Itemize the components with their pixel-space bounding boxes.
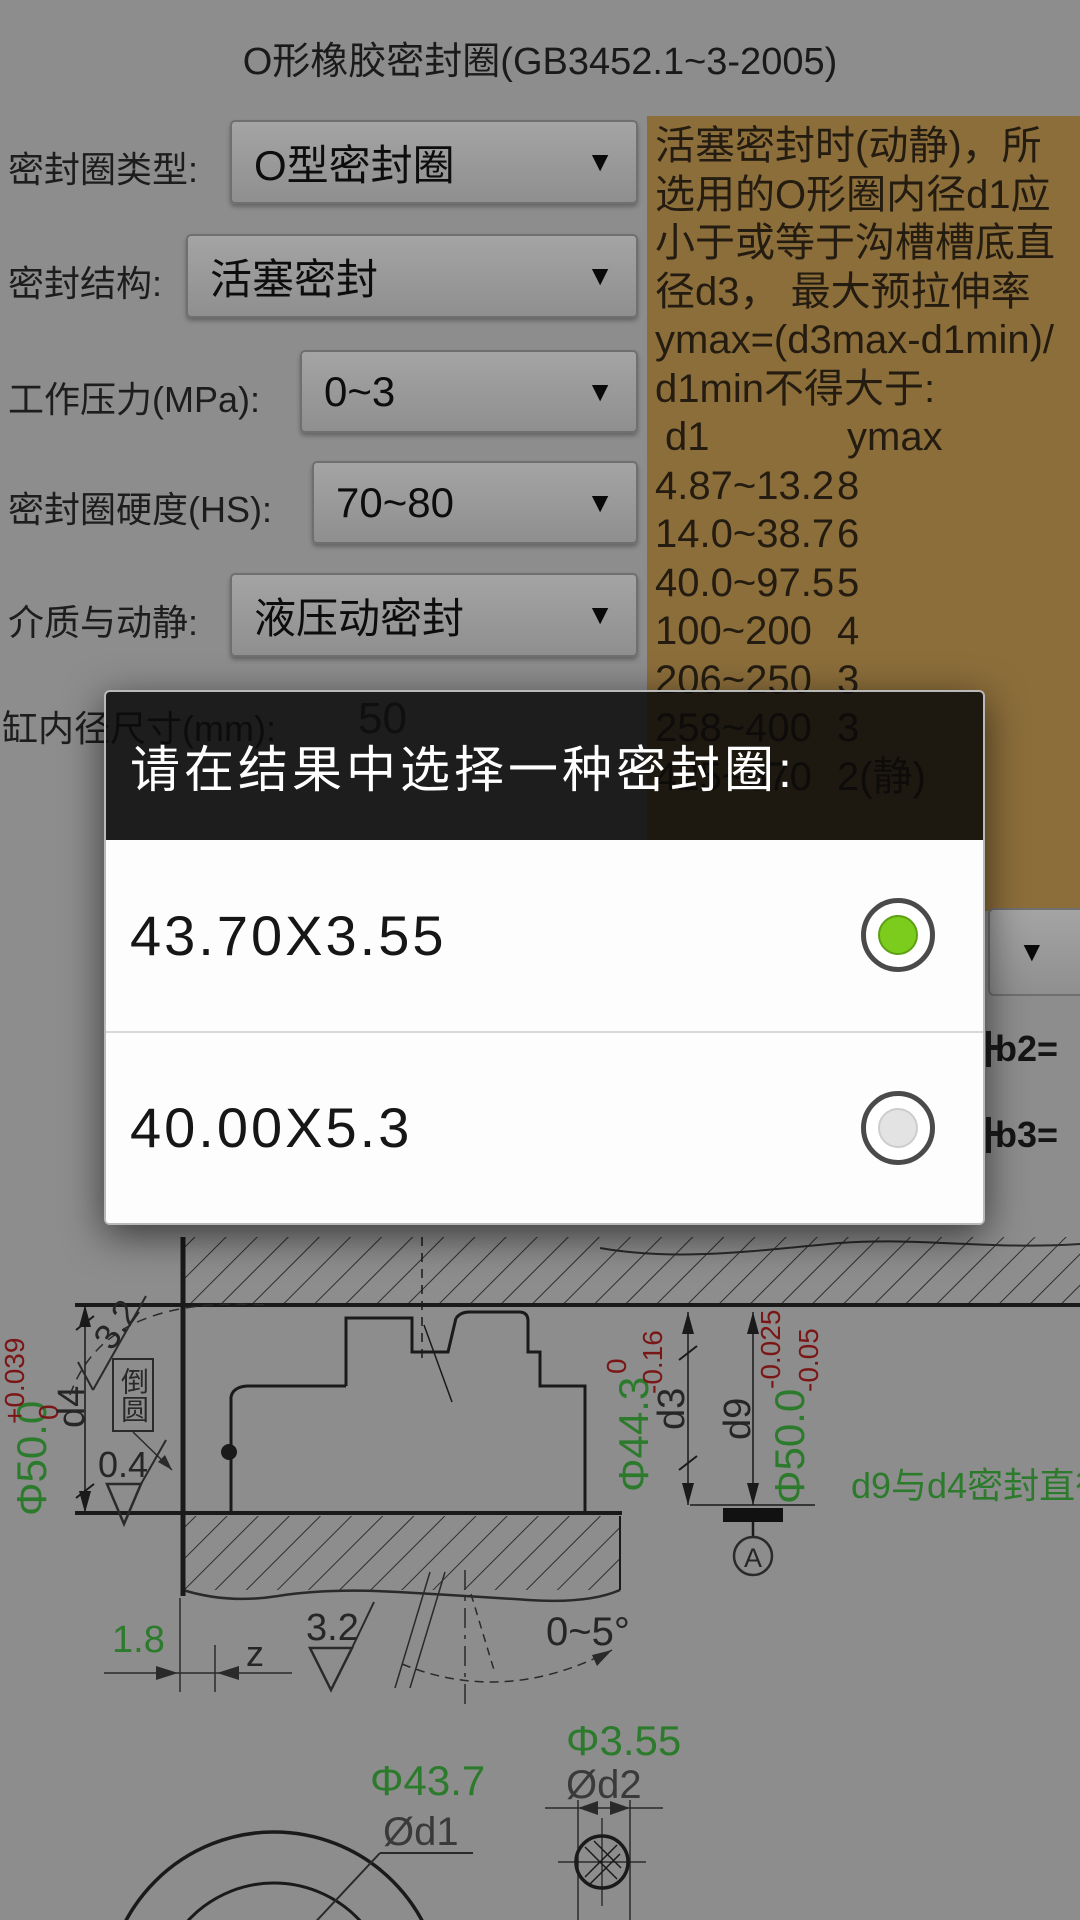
chevron-down-icon: ▼	[586, 599, 614, 631]
radio-dot	[878, 915, 918, 955]
hardness-dropdown[interactable]: 70~80 ▼	[312, 461, 638, 544]
angle-dim: 0~5°	[546, 1610, 630, 1654]
seal-structure-label: 密封结构:	[8, 255, 162, 307]
fillet-callout: 倒圆	[112, 1358, 154, 1432]
info-line: d1min不得大于:	[655, 365, 1080, 414]
dim-right-diameter: Φ50.0	[766, 1389, 813, 1504]
cylinder-bottom-wall	[183, 1516, 620, 1590]
dim-left-axis: d4	[51, 1386, 93, 1428]
table-header: d1 ymax	[655, 413, 1080, 462]
table-row: 40.0~97.55	[655, 559, 1080, 608]
medium-label: 介质与动静:	[8, 594, 198, 646]
groove-b2-label: b2=	[986, 1028, 1058, 1070]
seal-structure-value: 活塞密封	[210, 246, 378, 307]
info-line: 活塞密封时(动静)，所	[655, 122, 1080, 171]
seal-selection-dialog: 请在结果中选择一种密封圈: 43.70X3.55 40.00X5.3	[104, 690, 985, 1225]
app-screen: O形橡胶密封圈(GB3452.1~3-2005) 密封圈类型: O型密封圈 ▼ …	[0, 0, 1080, 1920]
pressure-dropdown[interactable]: 0~3 ▼	[300, 350, 638, 433]
cross-section-view	[545, 1800, 663, 1920]
radio-selected-icon[interactable]	[861, 898, 935, 972]
table-row: 4.87~13.28	[655, 462, 1080, 511]
page-title: O形橡胶密封圈(GB3452.1~3-2005)	[0, 30, 1080, 85]
dialog-header: 请在结果中选择一种密封圈:	[106, 692, 983, 840]
chamfer-dim: 1.8	[112, 1619, 165, 1661]
datum-label: A	[744, 1543, 762, 1573]
medium-value: 液压动密封	[254, 585, 464, 646]
cylinder-top-wall	[183, 1237, 1080, 1303]
dim-right-axis: d9	[717, 1398, 759, 1440]
info-line: 小于或等于沟槽槽底直	[655, 219, 1080, 268]
info-line: 选用的O形圈内径d1应	[655, 171, 1080, 220]
medium-dropdown[interactable]: 液压动密封 ▼	[230, 573, 638, 657]
z-label: z	[246, 1633, 264, 1674]
option-label: 40.00X5.3	[130, 1095, 412, 1160]
table-row: 100~2004	[655, 607, 1080, 656]
info-line: 径d3， 最大预拉伸率	[655, 268, 1080, 317]
chevron-down-icon: ▼	[586, 260, 614, 292]
dim-right-tol-upper: -0.025	[755, 1310, 786, 1389]
cs-axis: Ød2	[566, 1763, 642, 1807]
roughness-top: 3.2	[85, 1292, 147, 1357]
radio-dot	[878, 1108, 918, 1148]
seal-option-2[interactable]: 40.00X5.3	[106, 1033, 983, 1224]
cs-diameter: Φ3.55	[566, 1717, 681, 1764]
dim-left-tol-upper: +0.039	[0, 1338, 30, 1424]
clipped-char	[986, 1117, 991, 1153]
result-dropdown[interactable]: ▼	[988, 908, 1080, 996]
section-drawing: Φ50.0 +0.039 0 d4 3.2 0.4 Φ44.3	[0, 1225, 1080, 1920]
groove-b3-label: b3=	[986, 1114, 1058, 1156]
chevron-down-icon: ▼	[586, 487, 614, 519]
hardness-value: 70~80	[336, 479, 454, 527]
dialog-title: 请在结果中选择一种密封圈:	[130, 730, 796, 802]
detent-ball	[221, 1444, 237, 1460]
chevron-down-icon: ▼	[586, 376, 614, 408]
roughness-bottom: 3.2	[306, 1607, 359, 1649]
oring-inner-circle	[157, 1883, 391, 1920]
table-row: 14.0~38.76	[655, 510, 1080, 559]
seal-type-label: 密封圈类型:	[8, 141, 198, 193]
seal-option-1[interactable]: 43.70X3.55	[106, 840, 983, 1031]
dim-groove-tol-upper: 0	[601, 1358, 632, 1374]
seal-structure-dropdown[interactable]: 活塞密封 ▼	[186, 234, 638, 318]
info-line: ymax=(d3max-d1min)/	[655, 316, 1080, 365]
pressure-label: 工作压力(MPa):	[8, 371, 260, 423]
seal-diameter-note: d9与d4密封直径	[851, 1465, 1080, 1506]
roughness-left: 0.4	[98, 1444, 148, 1485]
hardness-label: 密封圈硬度(HS):	[8, 481, 272, 533]
seal-type-dropdown[interactable]: O型密封圈 ▼	[230, 120, 638, 204]
pressure-value: 0~3	[324, 368, 395, 416]
radio-unselected-icon[interactable]	[861, 1091, 935, 1165]
seal-type-value: O型密封圈	[254, 132, 455, 193]
dim-groove-tol-lower: -0.16	[637, 1330, 668, 1394]
chevron-down-icon: ▼	[586, 146, 614, 178]
dim-right-tol-lower: -0.05	[793, 1328, 824, 1392]
dialog-body: 43.70X3.55 40.00X5.3	[106, 840, 983, 1223]
clipped-char	[986, 1031, 991, 1067]
chevron-down-icon: ▼	[1018, 936, 1046, 968]
dim-groove-axis: d3	[651, 1388, 693, 1430]
datum-target	[723, 1508, 783, 1522]
ring-diameter: Φ43.7	[370, 1757, 485, 1804]
ring-axis: Ød1	[383, 1810, 459, 1854]
option-label: 43.70X3.55	[130, 903, 446, 968]
